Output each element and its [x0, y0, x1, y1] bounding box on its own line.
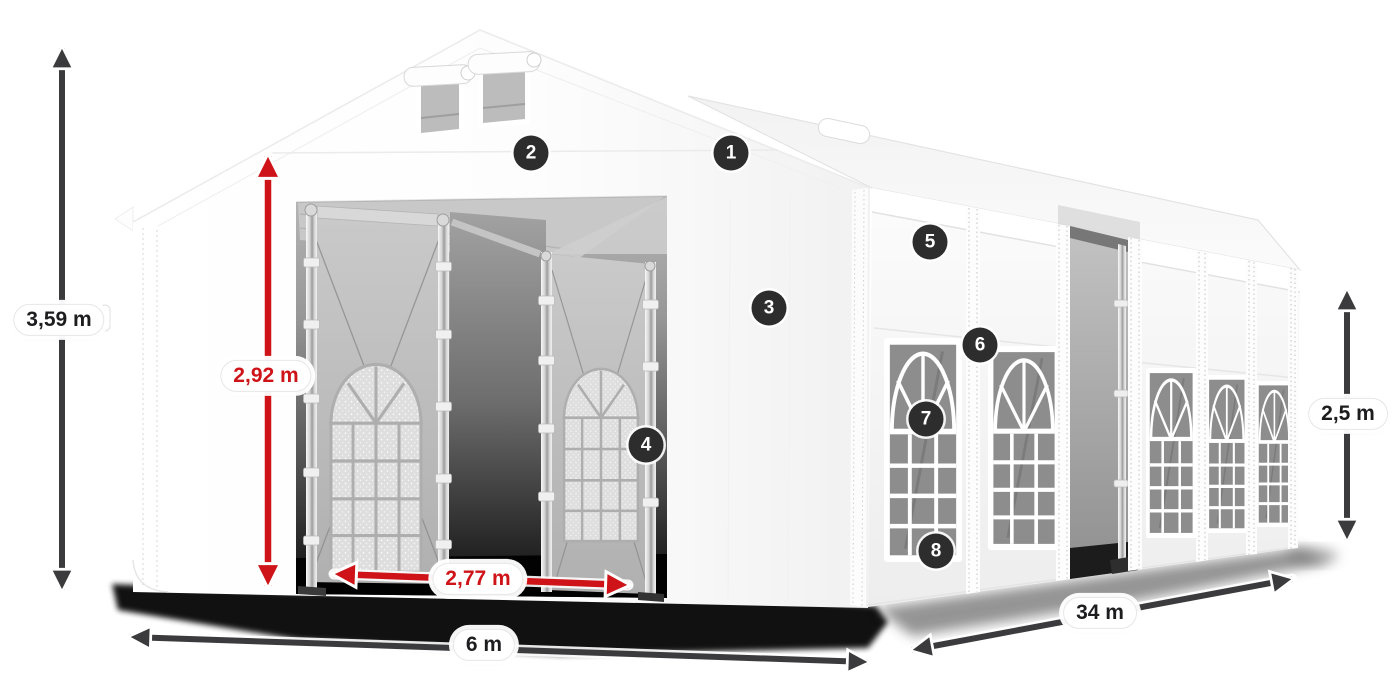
dimension-pill-side-height: 2,5 m	[1309, 399, 1387, 429]
dimension-pill-width: 6 m	[454, 630, 514, 660]
marker-3: 3	[752, 291, 787, 326]
entrance-left-door	[306, 206, 446, 584]
marker-5: 5	[913, 225, 948, 260]
side-door-opening	[1058, 205, 1140, 579]
entrance-right-door	[548, 254, 650, 594]
dimension-pill-entrance-height: 2,92 m	[221, 361, 310, 391]
dimension-pill-length: 34 m	[1064, 598, 1136, 628]
marker-2: 2	[514, 136, 549, 171]
tent-illustration	[0, 0, 1400, 700]
marker-1: 1	[714, 136, 749, 171]
marker-6: 6	[963, 328, 998, 363]
marker-4: 4	[629, 428, 664, 463]
tent-diagram: 3,59 m 2,92 m 2,77 m 6 m 34 m 2,5 m 1 2 …	[0, 0, 1400, 700]
dimension-pill-entrance-width: 2,77 m	[433, 564, 522, 594]
dimension-pill-total-height: 3,59 m	[14, 305, 103, 335]
entrance	[296, 196, 667, 602]
marker-8: 8	[919, 534, 954, 569]
marker-7: 7	[909, 402, 944, 437]
